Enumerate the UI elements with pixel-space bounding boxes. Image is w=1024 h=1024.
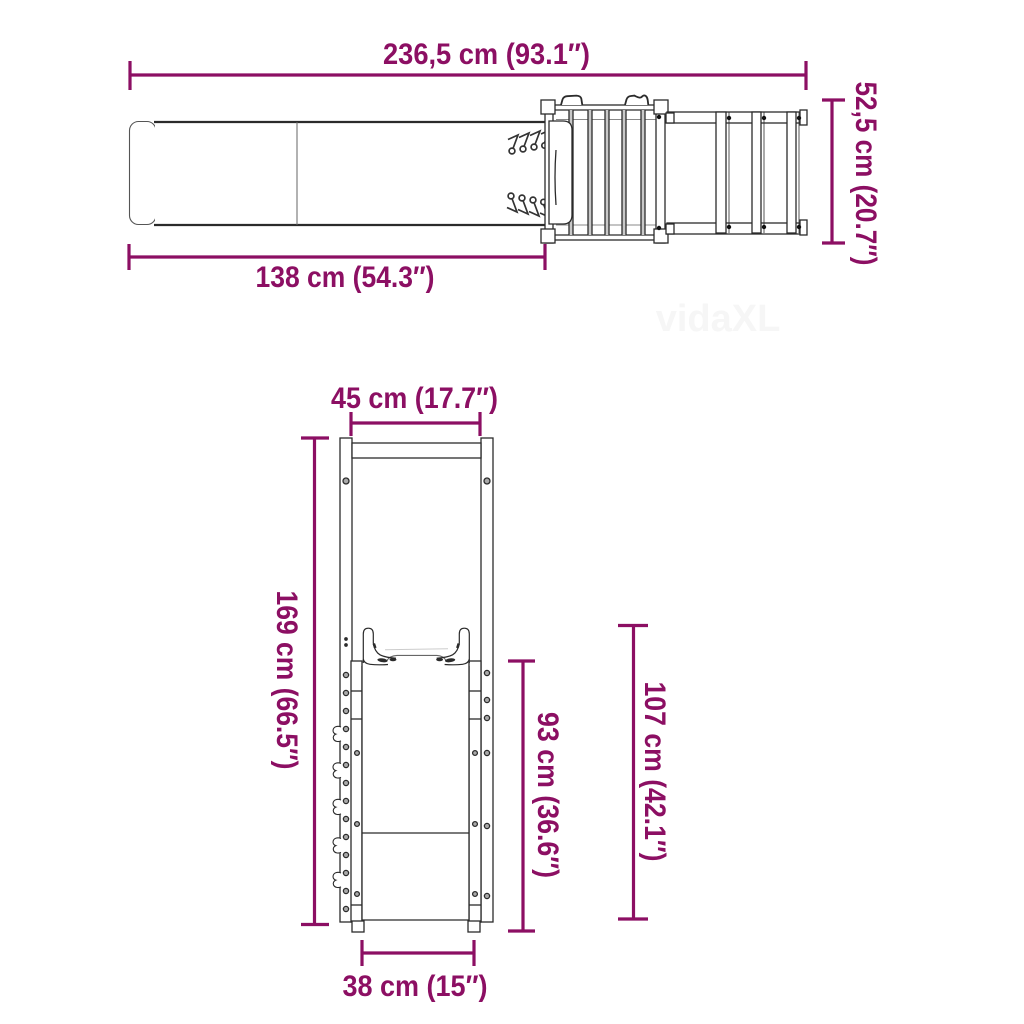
svg-text:107 cm (42.1″): 107 cm (42.1″) <box>638 682 671 862</box>
svg-text:vidaXL: vidaXL <box>656 298 781 340</box>
svg-text:93 cm (36.6″): 93 cm (36.6″) <box>531 712 564 878</box>
svg-text:236,5 cm (93.1″): 236,5 cm (93.1″) <box>383 38 590 71</box>
svg-text:138 cm (54.3″): 138 cm (54.3″) <box>256 261 435 294</box>
svg-text:38 cm (15″): 38 cm (15″) <box>343 970 488 1003</box>
svg-text:169 cm (66.5″): 169 cm (66.5″) <box>270 591 303 770</box>
svg-text:45 cm (17.7″): 45 cm (17.7″) <box>331 382 498 415</box>
svg-text:52,5 cm (20.7″): 52,5 cm (20.7″) <box>849 82 882 266</box>
